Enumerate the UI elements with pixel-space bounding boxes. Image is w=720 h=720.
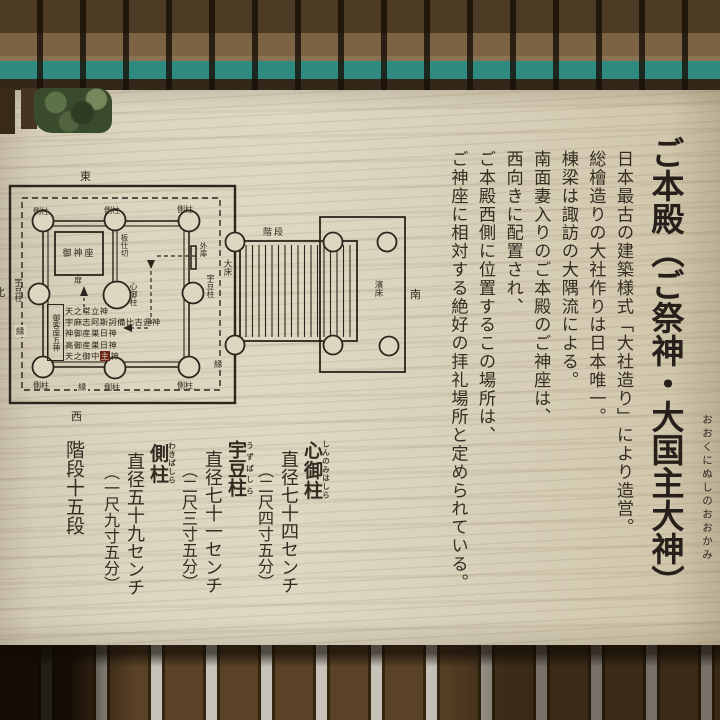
pillar-circle (179, 357, 200, 378)
seat-door-char: 扉 (74, 275, 82, 286)
measurement-name: 宇豆柱うずばしら (224, 440, 254, 635)
post-circle (324, 233, 343, 252)
direction-north: 北 (0, 284, 5, 300)
direction-east: 東 (80, 168, 91, 184)
hama-floor-label: 濱床 (372, 280, 384, 297)
veranda-label: 縁 (77, 381, 88, 393)
measurement-heart-pillar: 心御柱しんのみはしら 直径七十四センチ （二尺四寸五分） (254, 440, 330, 635)
sign-title: ご本殿（ご祭神・大国主大神） (641, 136, 689, 622)
stair-treads (246, 245, 350, 337)
measurement-diameter: 直径七十四センチ (276, 440, 300, 635)
post-circle (380, 337, 399, 356)
door-mark (191, 246, 196, 269)
deity-name: 宇麻志阿斯訶備比古遅神 (65, 317, 161, 328)
body-line: ご本殿西側に位置するこの場所は、 (470, 150, 498, 636)
direction-west: 西 (71, 408, 82, 424)
seat-arrow-up (80, 286, 88, 296)
veranda-label: 縁 (213, 358, 224, 370)
floorplan-lines (8, 168, 438, 426)
floorplan-diagram: 東 西 南 北 側柱 側柱 側柱 側柱 側柱 側柱 宇豆柱 宇豆柱 心御柱 板仕… (8, 168, 438, 426)
measurement-name: 側柱わきばしら (146, 442, 176, 637)
pillar-label-side: 側柱 (33, 206, 49, 217)
stairs-label: 階段 (263, 225, 285, 238)
body-line: 総檜造りの大社作りは日本唯一。 (581, 150, 609, 636)
pillar-label-side: 側柱 (104, 382, 120, 393)
pillar-label-side: 側柱 (33, 380, 49, 391)
stairs-count: 階段十五段 (62, 440, 86, 635)
direction-south: 南 (410, 286, 421, 302)
fence-slat (0, 88, 15, 134)
measurement-stairs: 階段十五段 (58, 440, 86, 635)
partition-label: 板仕切 (119, 234, 130, 257)
title-furigana: おおくにぬしのおおかみ (700, 414, 715, 563)
pillar-label-side: 側柱 (177, 204, 193, 215)
body-line: 棟梁は諏訪の大隅流による。 (553, 150, 581, 636)
pillar-label-side: 側柱 (177, 380, 193, 391)
divine-seat-label: 御神座 (55, 246, 103, 259)
post-circle (226, 233, 245, 252)
pillar-label-uzu: 宇豆柱 (13, 278, 24, 302)
guest-seat-label: 御客座五神 (51, 314, 60, 352)
post-circle (324, 336, 343, 355)
pillar-circle-uzu (29, 284, 50, 305)
large-floor-label: 大床 (221, 259, 233, 276)
foliage (34, 88, 112, 133)
body-line: 南面妻入りのご本殿のご神座は、 (526, 150, 554, 636)
bottom-fence (0, 645, 720, 720)
photo-shrine-sign: 東 西 南 北 側柱 側柱 側柱 側柱 側柱 側柱 宇豆柱 宇豆柱 心御柱 板仕… (0, 0, 720, 720)
sign-body-text: 日本最古の建築様式「大社造り」により造営。 総檜造りの大社作りは日本唯一。 棟梁… (430, 150, 636, 636)
body-line: ご神座に相対する絶好の拝礼場所と定められている。 (443, 150, 471, 636)
measurement-diameter: 直径七十一センチ (200, 440, 224, 635)
veranda-label: 縁 (15, 325, 26, 337)
deity-name: 高御産巣日神 (65, 340, 161, 351)
door-label: 外扉 (198, 242, 209, 257)
top-fence (0, 0, 720, 90)
measurement-uzu-pillar: 宇豆柱うずばしら 直径七十一センチ （二尺三寸五分） (178, 440, 254, 635)
pillar-label-heart: 心御柱 (128, 282, 139, 306)
measurement-diameter: 直径五十九センチ (122, 442, 146, 637)
highlighted-character: 主 (100, 351, 111, 361)
measurement-side-pillar: 側柱わきばしら 直径五十九センチ （一尺九寸五分） (100, 442, 176, 637)
deity-name: 天之常立神 (65, 306, 161, 317)
body-line: 西向きに配置され、 (498, 150, 526, 636)
body-line: 日本最古の建築様式「大社造り」により造営。 (608, 150, 636, 636)
route-arrow-down (147, 260, 155, 269)
measurement-shaku: （一尺九寸五分） (98, 442, 122, 637)
deity-list: 天之常立神 宇麻志阿斯訶備比古遅神 神御産巣日神 高御産巣日神 天之御中主神 (65, 306, 161, 362)
heart-pillar-circle (104, 282, 131, 309)
deity-name: 神御産巣日神 (65, 328, 161, 339)
guest-seat-box: 御客座五神 (47, 304, 64, 361)
pillar-label-uzu: 宇豆柱 (205, 274, 216, 298)
post-circle (378, 233, 397, 252)
measurement-name: 心御柱しんのみはしら (300, 440, 330, 635)
pillar-circle-uzu (183, 283, 204, 304)
pillar-label-side: 側柱 (104, 205, 120, 216)
measurement-shaku: （二尺四寸五分） (252, 440, 276, 635)
deity-name-highlighted: 天之御中主神 (65, 351, 161, 362)
post-circle (226, 336, 245, 355)
measurement-shaku: （二尺三寸五分） (176, 440, 200, 635)
top-fence-left-extension (0, 88, 118, 136)
